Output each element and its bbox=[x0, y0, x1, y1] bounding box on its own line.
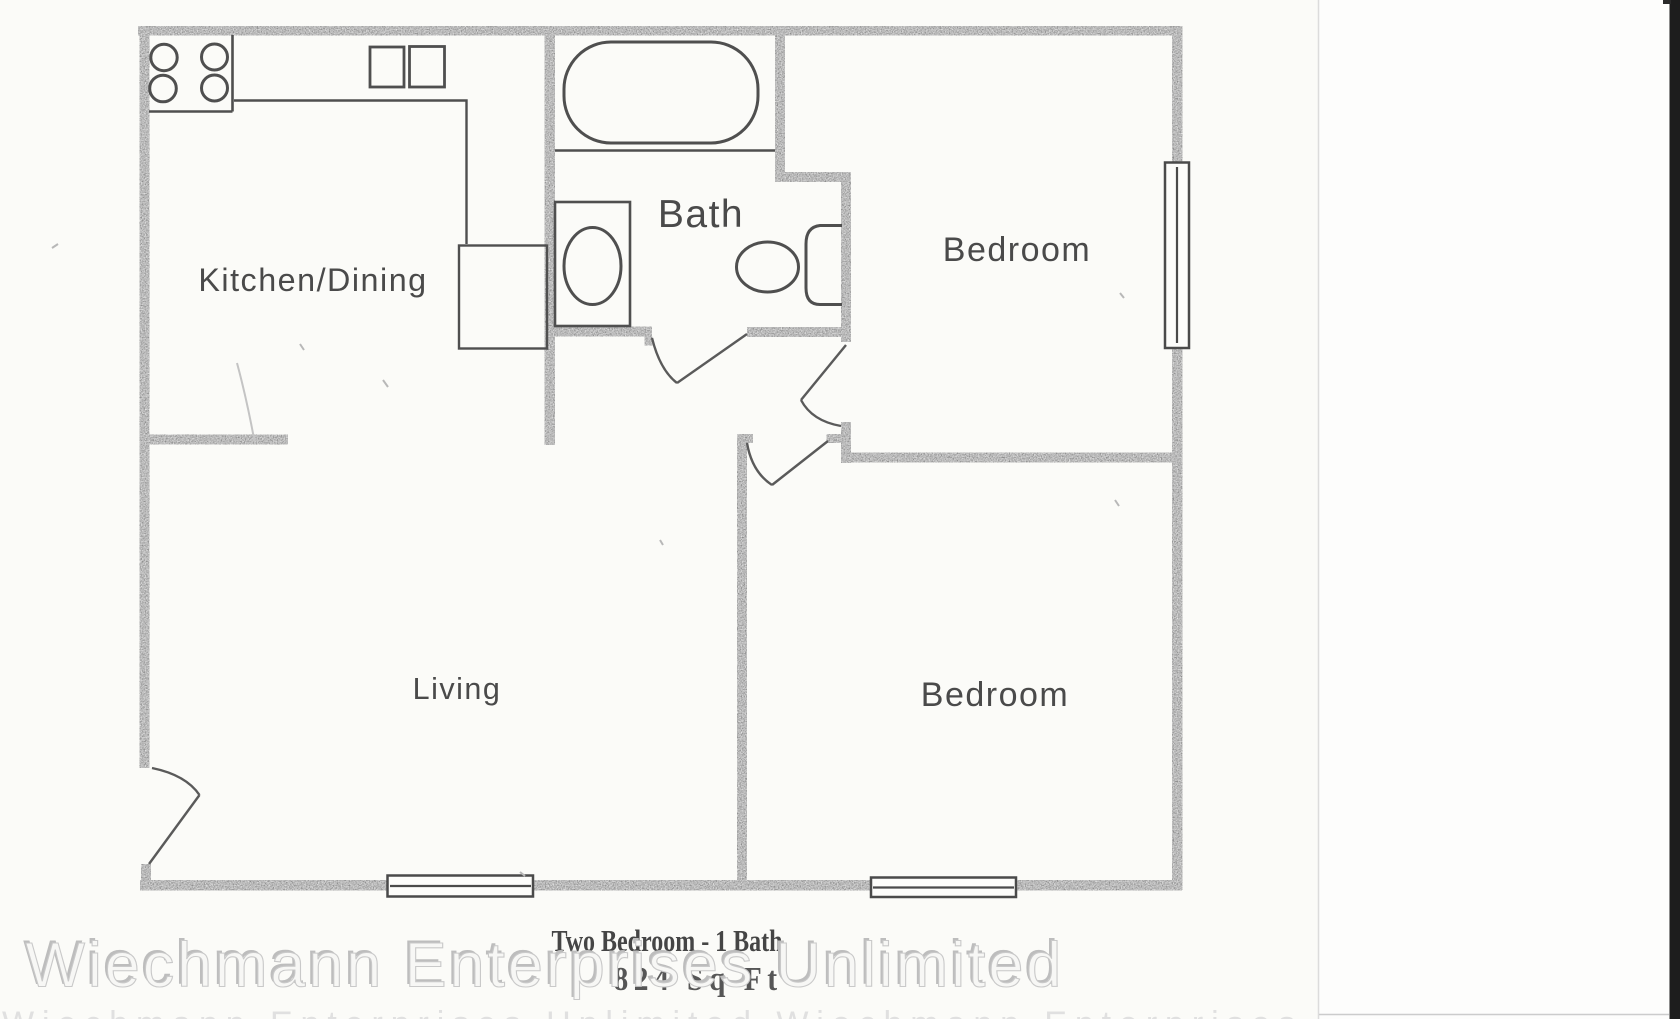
svg-text:Bath: Bath bbox=[658, 193, 744, 236]
svg-text:Kitchen/Dining: Kitchen/Dining bbox=[198, 262, 427, 298]
svg-text:Wiechmann Enterprises Unlimite: Wiechmann Enterprises Unlimited bbox=[26, 931, 1065, 1001]
svg-text:Bedroom: Bedroom bbox=[943, 231, 1091, 269]
svg-text:Wiechmann Enterprises Unlimite: Wiechmann Enterprises Unlimited Wiechman… bbox=[2, 1005, 1303, 1019]
svg-text:Living: Living bbox=[413, 672, 502, 706]
svg-text:Bedroom: Bedroom bbox=[921, 676, 1069, 714]
